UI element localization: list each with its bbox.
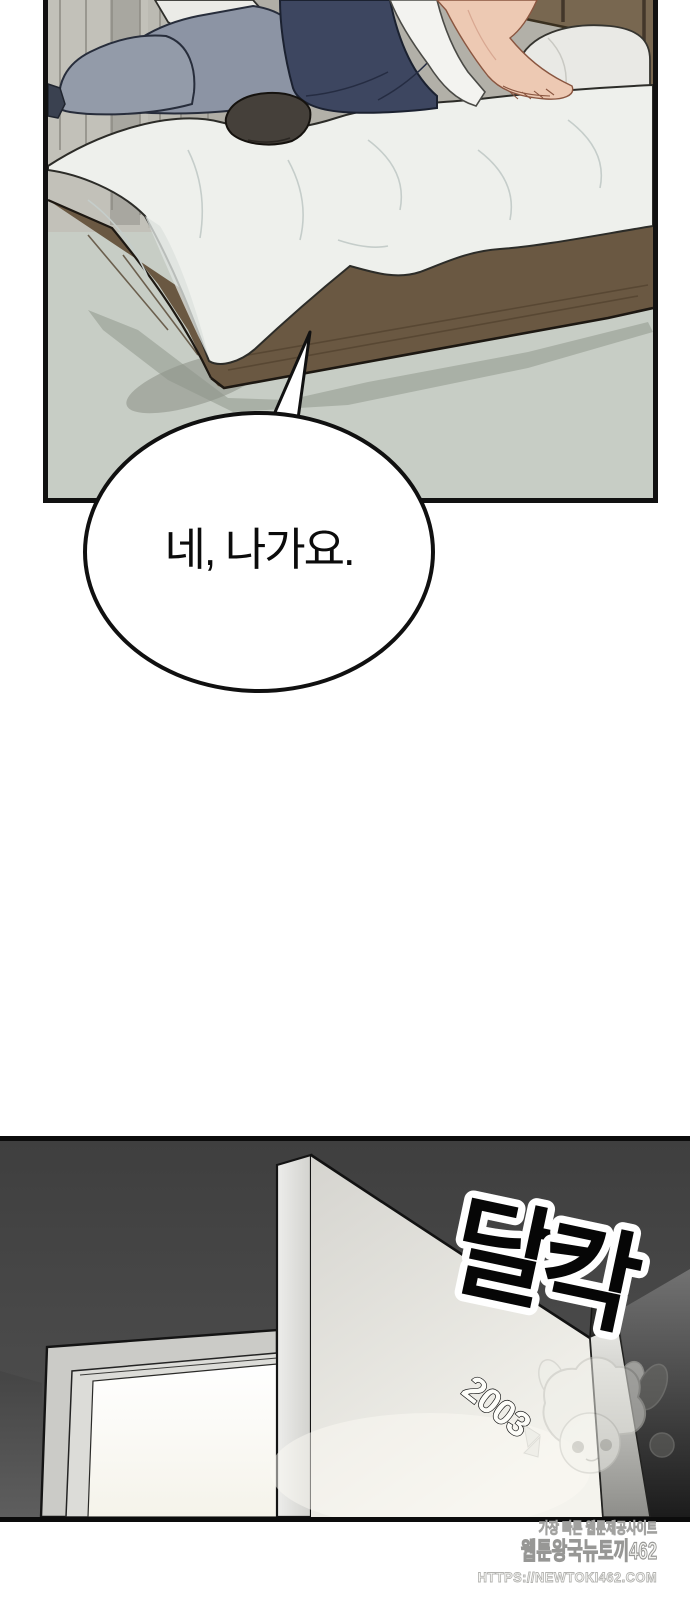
webtoon-page: 네, 나가요.	[0, 0, 690, 1600]
panel-hallway: 2003 달 칵	[0, 1136, 690, 1522]
bedroom-scene	[48, 0, 653, 498]
door-frame	[41, 1330, 277, 1517]
sock-foot	[226, 93, 311, 145]
watermark-line1: 가장 빠른 웹툰제공사이트	[513, 1520, 657, 1537]
watermark-line3: HTTPS://NEWTOKI462.COM	[478, 1569, 657, 1585]
panel-bedroom	[43, 0, 658, 503]
hallway-scene: 2003 달 칵	[0, 1141, 690, 1517]
speech-bubble: 네, 나가요.	[83, 411, 435, 693]
site-watermark: 가장 빠른 웹툰제공사이트 웹툰왕국뉴토끼462 HTTPS://NEWTOKI…	[462, 1520, 657, 1585]
speech-text: 네, 나가요.	[164, 513, 353, 592]
doorway-light	[88, 1364, 277, 1517]
watermark-line2: 웹툰왕국뉴토끼462	[520, 1538, 657, 1566]
wall-left-glow	[0, 1371, 42, 1517]
